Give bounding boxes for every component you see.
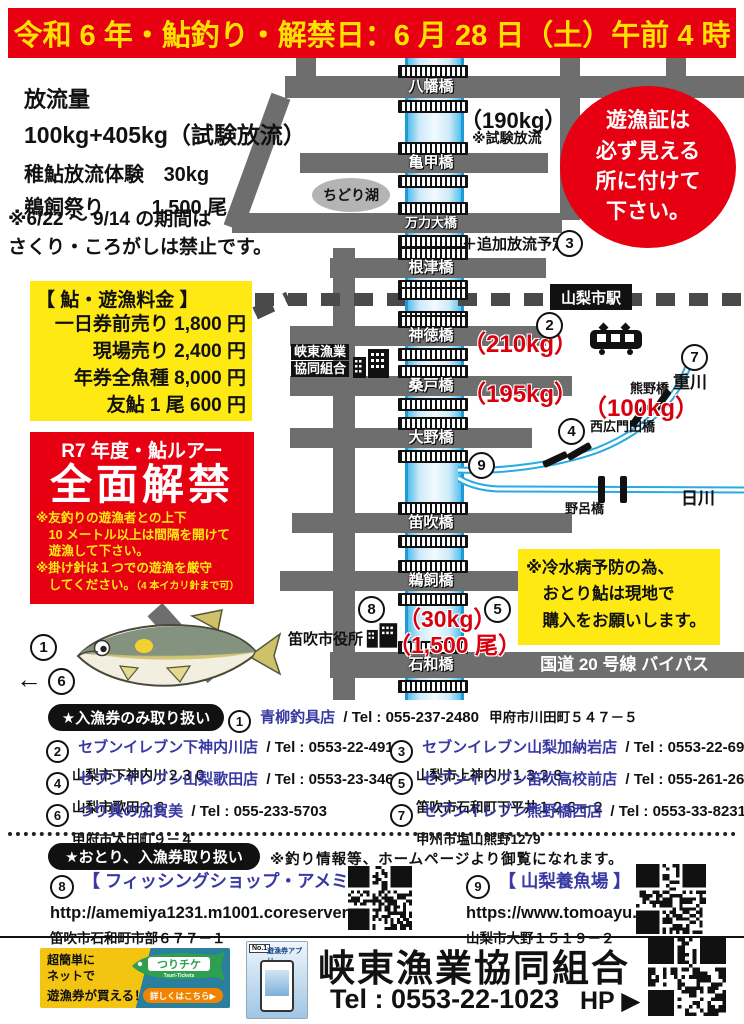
license-line-3: 所に付けて bbox=[596, 167, 701, 197]
left-arrow: ← bbox=[16, 664, 42, 695]
fees-item-2: 現場売り 2,400 円 bbox=[36, 339, 246, 366]
bridge-icon bbox=[398, 450, 468, 463]
shop-addr-7: 甲州市塩山熊野1279 bbox=[416, 828, 744, 848]
stocking-amount: 100kg+405kg（試験放流） bbox=[24, 116, 306, 150]
city-hall-label: 笛吹市役所 bbox=[288, 628, 363, 649]
lure-subtitle: R7 年度・鮎ルアー bbox=[36, 436, 248, 463]
stock-190-note: ※試験放流 bbox=[472, 128, 542, 148]
shop-name-9: 【 山梨養魚場 】 bbox=[498, 871, 630, 891]
bridge-icon bbox=[398, 680, 468, 693]
shop-number-9: 9 bbox=[466, 875, 490, 899]
bridge-icon bbox=[398, 100, 468, 113]
shop-number-2: 2 bbox=[46, 740, 69, 763]
road bbox=[666, 58, 686, 78]
lure-box: R7 年度・鮎ルアー 全面解禁 ※友釣りの遊漁者との上下 10 メートル以上は間… bbox=[30, 432, 254, 604]
lake-label: ちどり湖 bbox=[323, 185, 379, 205]
shop-name-5: セブンイレブン笛吹高校前店 bbox=[422, 771, 617, 788]
tsurichike-fish-logo: つりチケ Tsuri-Tickets bbox=[128, 951, 226, 981]
cold-note-line3: 購入をお願いします。 bbox=[526, 608, 712, 634]
stocking-info: 放流量 100kg+405kg（試験放流） 稚鮎放流体験 30kg 鵜飼祭り 1… bbox=[24, 82, 306, 220]
season-note: ※6/22 ～ 9/14 の期間は さくり・ころがしは禁止です。 bbox=[8, 206, 272, 261]
bridge-icon bbox=[398, 535, 468, 548]
fees-item-3: 年券全魚種 8,000 円 bbox=[36, 366, 246, 393]
tsurichike-banner[interactable]: 超簡単に ネットで 遊漁券が買える！ つりチケ Tsuri-Tickets 詳し… bbox=[40, 948, 230, 1008]
license-notice-circle: 遊漁証は 必ず見える 所に付けて 下さい。 bbox=[560, 86, 736, 248]
stock-1500: （1,500 尾） bbox=[388, 626, 521, 660]
lake-chidori: ちどり湖 bbox=[312, 178, 390, 212]
qr-code-tomoayu bbox=[636, 864, 706, 934]
shop-addr-1: 甲府市川田町５４７－５ bbox=[489, 710, 638, 725]
shop-number-4: 4 bbox=[46, 772, 69, 795]
stocking-title: 放流量 bbox=[24, 82, 306, 114]
dealer-shop-8: 8 【 フィッシングショップ・アメミヤ 】 http://amemiya1231… bbox=[50, 868, 388, 947]
coop-label-line2: 協同組合 bbox=[291, 361, 349, 377]
svg-text:つりチケ: つりチケ bbox=[157, 958, 201, 971]
bridge-label: 桑戸橋 bbox=[396, 376, 466, 396]
station-label: 山梨市駅 bbox=[561, 287, 621, 308]
shop-number-7: 7 bbox=[390, 804, 413, 827]
shop-name-2: セブンイレブン下神内川店 bbox=[78, 739, 258, 756]
lure-note2-line2: してください。 bbox=[36, 578, 136, 592]
shop-name-6: つり具の加賀美 bbox=[78, 803, 183, 820]
otori-badge: ★おとり、入漁券取り扱い bbox=[48, 843, 260, 870]
shop-name-3: セブンイレブン山梨加納岩店 bbox=[422, 739, 617, 756]
lure-title: 全面解禁 bbox=[36, 463, 248, 507]
license-shops-badge-label: ★入漁券のみ取り扱い bbox=[62, 707, 210, 728]
stocking-row1-label: 稚鮎放流体験 bbox=[24, 164, 144, 186]
shop-tel-2: / Tel : 0553-22-4910 bbox=[266, 739, 402, 756]
shop-number-6: 6 bbox=[46, 804, 69, 827]
fees-title: 【 鮎・遊漁料金 】 bbox=[36, 285, 246, 312]
coop-building-icon bbox=[352, 348, 390, 378]
road bbox=[296, 58, 316, 78]
shop-url-8[interactable]: http://amemiya1231.m1001.coreserver.jp/ bbox=[50, 904, 388, 923]
bridge-label: 根津橋 bbox=[396, 258, 466, 278]
shop-item-7: 7 セブンイレブン熊野橋西店 / Tel : 0553-33-8231 甲州市塩… bbox=[390, 800, 744, 848]
qr-code-org-hp bbox=[648, 938, 726, 1016]
license-line-4: 下さい。 bbox=[606, 197, 690, 227]
shop-tel-4: / Tel : 0553-23-3466 bbox=[266, 771, 402, 788]
shop-item-6: 6 つり具の加賀美 / Tel : 055-233-5703 甲府市太田町９－４ bbox=[46, 800, 327, 848]
fees-box: 【 鮎・遊漁料金 】 一日券前売り 1,800 円 現場売り 2,400 円 年… bbox=[30, 281, 252, 421]
lure-note-line1: ※友釣りの遊漁者との上下 bbox=[36, 510, 248, 527]
shop-name-4: セブンイレブン山梨歌田店 bbox=[78, 771, 258, 788]
fishpass-app-card[interactable]: No.1 遊漁券アプリ bbox=[246, 941, 308, 1019]
season-note-line1: ※6/22 ～ 9/14 の期間は bbox=[8, 206, 272, 234]
fees-item-4: 友鮎 1 尾 600 円 bbox=[36, 393, 246, 420]
nishihiromonda-bridge-label: 西広門田橋 bbox=[590, 416, 655, 435]
station-box: 山梨市駅 bbox=[550, 284, 632, 310]
map-marker-7: 7 bbox=[681, 344, 708, 371]
bridge-label: 鵜飼橋 bbox=[396, 571, 466, 591]
homepage-note: ※釣り情報等、ホームページより御覧になれます。 bbox=[270, 848, 624, 869]
bridge-icon bbox=[398, 348, 468, 361]
map-marker-4: 4 bbox=[558, 418, 585, 445]
cold-note-line1: ※冷水病予防の為、 bbox=[526, 555, 712, 581]
rail-bridge-icon bbox=[398, 287, 468, 300]
lure-note-line3: 遊漁して下さい。 bbox=[36, 543, 248, 560]
map-marker-9: 9 bbox=[468, 452, 495, 479]
season-note-line2: さくり・ころがしは禁止です。 bbox=[8, 234, 272, 262]
road bbox=[560, 58, 580, 78]
additional-stocking: ＋追加放流予定 bbox=[462, 233, 567, 254]
banner-detail-button[interactable]: 詳しくはこちら▶ bbox=[143, 988, 223, 1003]
lure-note2-small: （4 本イカリ針まで可） bbox=[136, 581, 239, 592]
header-banner: 令和 6 年・鮎釣り・解禁日：6 月 28 日（土）午前 4 時 bbox=[8, 8, 736, 58]
banner-line1: 超簡単に bbox=[47, 951, 95, 968]
bridge-label: 八幡橋 bbox=[396, 76, 466, 98]
shop-number-1: 1 bbox=[228, 710, 251, 733]
stock-195: （195kg） bbox=[462, 374, 578, 409]
shop-tel-7: / Tel : 0553-33-8231 bbox=[610, 803, 744, 820]
shop-name-1: 青柳釣具店 bbox=[260, 709, 335, 726]
coop-label-line1: 峡東漁業 bbox=[291, 344, 349, 360]
stocking-row1-value: 30kg bbox=[164, 164, 210, 186]
app-phone-image bbox=[260, 960, 294, 1012]
shop-number-5: 5 bbox=[390, 772, 413, 795]
org-hp-link[interactable]: HP ▶ bbox=[580, 986, 640, 1016]
shop-number-8: 8 bbox=[50, 875, 74, 899]
cold-note-line2: おとり鮎は現地で bbox=[526, 581, 712, 607]
svg-text:Tsuri-Tickets: Tsuri-Tickets bbox=[164, 973, 195, 979]
city-hall-building-icon bbox=[366, 622, 398, 648]
map-marker-6: 6 bbox=[48, 668, 75, 695]
org-tel: Tel : 0553-22-1023 bbox=[330, 984, 559, 1015]
bridge-label: 亀甲橋 bbox=[396, 153, 466, 173]
ayu-fish-illustration bbox=[72, 608, 282, 703]
shop-tel-6: / Tel : 055-233-5703 bbox=[191, 803, 327, 820]
bridge-icon bbox=[398, 175, 468, 188]
bridge-label: 笛吹橋 bbox=[396, 513, 466, 533]
lure-note-line2: 10 メートル以上は間隔を開けて bbox=[36, 527, 248, 544]
cold-water-box: ※冷水病予防の為、 おとり鮎は現地で 購入をお願いします。 bbox=[518, 549, 720, 645]
banner-line2: ネットで bbox=[47, 967, 95, 984]
shop-tel-3: / Tel : 0553-22-6990 bbox=[625, 739, 744, 756]
coop-map-label: 峡東漁業 協同組合 bbox=[291, 344, 349, 377]
train-icon bbox=[588, 322, 644, 356]
dotted-divider bbox=[8, 832, 736, 836]
header-title: 令和 6 年・鮎釣り・解禁日：6 月 28 日（土）午前 4 時 bbox=[13, 12, 730, 54]
qr-code-amemiya bbox=[348, 866, 412, 930]
shop-number-3: 3 bbox=[390, 740, 413, 763]
shop-name-7: セブンイレブン熊野橋西店 bbox=[422, 803, 602, 820]
map-marker-5: 5 bbox=[484, 596, 511, 623]
license-line-1: 遊漁証は bbox=[606, 106, 690, 136]
map-marker-2: 2 bbox=[536, 312, 563, 339]
map-marker-3: 3 bbox=[556, 230, 583, 257]
bridge-label: 大野橋 bbox=[396, 428, 466, 448]
license-line-2: 必ず見える bbox=[596, 137, 700, 167]
otori-badge-label: ★おとり、入漁券取り扱い bbox=[65, 846, 243, 867]
shop-name-8: 【 フィッシングショップ・アメミヤ 】 bbox=[82, 871, 388, 891]
lure-note2-line1: ※掛け針は１つでの遊漁を厳守 bbox=[36, 560, 248, 577]
bridge-label: 万力大橋 bbox=[396, 213, 466, 233]
shop-item-1: 1 青柳釣具店 / Tel : 055-237-2480 甲府市川田町５４７－５ bbox=[228, 706, 638, 733]
shop-tel-1: / Tel : 055-237-2480 bbox=[343, 709, 479, 726]
map-marker-1: 1 bbox=[30, 634, 57, 661]
highway-label: 国道 20 号線 バイパス bbox=[505, 652, 744, 678]
fees-item-1: 一日券前売り 1,800 円 bbox=[36, 312, 246, 339]
banner-line3: 遊漁券が買える！ bbox=[47, 985, 147, 1004]
flyer-page: 令和 6 年・鮎釣り・解禁日：6 月 28 日（土）午前 4 時 国道 20 号… bbox=[0, 0, 744, 1024]
hi-river-label: 日川 bbox=[681, 484, 715, 509]
license-shops-badge: ★入漁券のみ取り扱い bbox=[48, 704, 224, 731]
noro-bridge-label: 野呂橋 bbox=[565, 498, 604, 517]
bridge-icon bbox=[398, 398, 468, 411]
shop-tel-5: / Tel : 055-261-2600 bbox=[625, 771, 744, 788]
map-marker-8: 8 bbox=[358, 596, 385, 623]
bridge-label: 神徳橋 bbox=[396, 326, 466, 346]
